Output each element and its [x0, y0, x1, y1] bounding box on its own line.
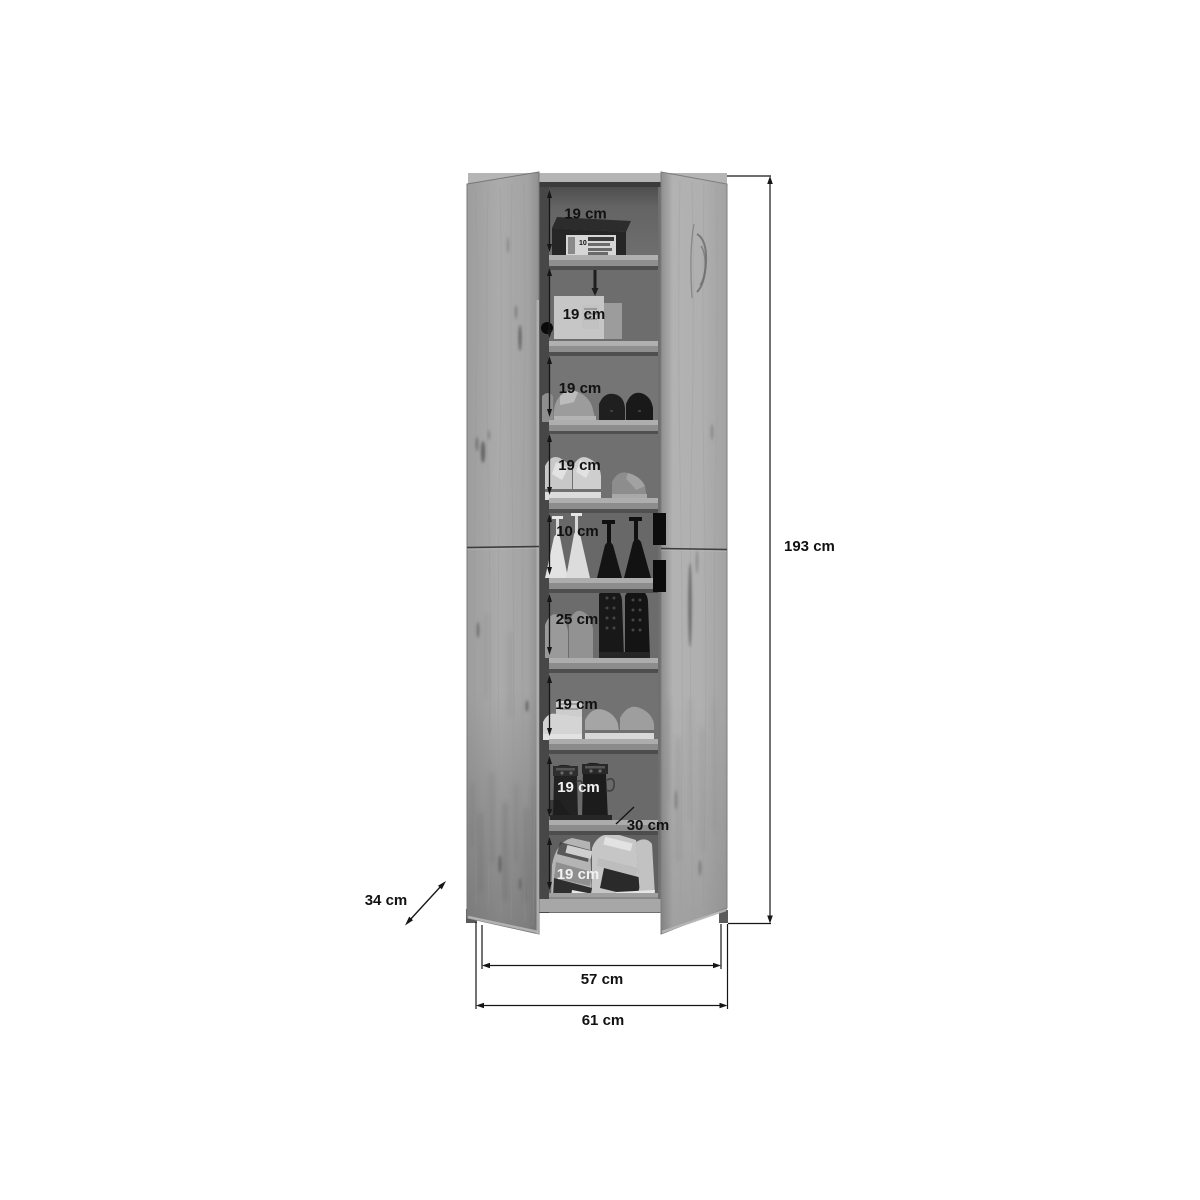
svg-text:193 cm: 193 cm: [784, 538, 835, 555]
svg-text:25 cm: 25 cm: [556, 611, 599, 628]
svg-text:19 cm: 19 cm: [559, 380, 602, 397]
svg-text:10: 10: [579, 240, 587, 247]
svg-text:30 cm: 30 cm: [627, 817, 670, 834]
svg-text:19 cm: 19 cm: [557, 779, 600, 796]
svg-text:19 cm: 19 cm: [557, 866, 600, 883]
svg-text:57 cm: 57 cm: [581, 971, 624, 988]
svg-text:19 cm: 19 cm: [555, 696, 598, 713]
svg-text:19 cm: 19 cm: [564, 206, 607, 223]
svg-text:34 cm: 34 cm: [365, 892, 408, 909]
svg-text:10 cm: 10 cm: [556, 523, 599, 540]
svg-text:19 cm: 19 cm: [563, 306, 606, 323]
svg-text:61 cm: 61 cm: [582, 1012, 625, 1029]
svg-text:19 cm: 19 cm: [558, 457, 601, 474]
